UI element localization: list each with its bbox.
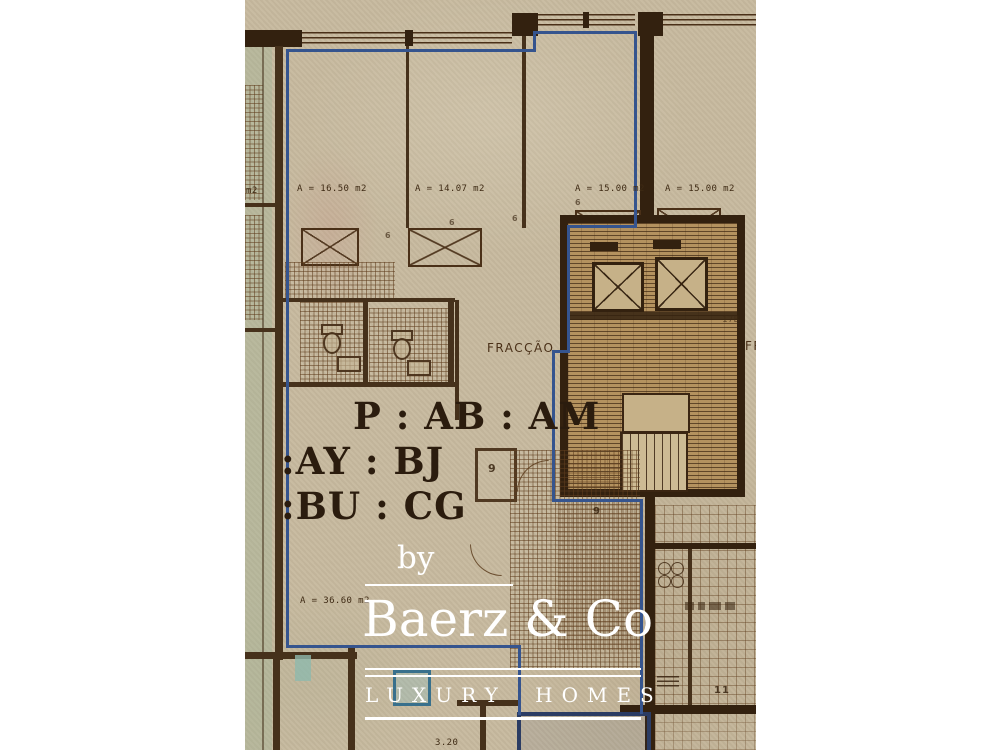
window-mullion xyxy=(405,30,413,46)
elevator-sill xyxy=(590,242,618,251)
partition-wall xyxy=(522,36,526,228)
area-label-partial: m2 xyxy=(246,186,258,196)
door-swing-arc xyxy=(470,544,502,576)
watermark-rule-top xyxy=(365,584,513,586)
faded-text-mark xyxy=(725,602,735,610)
toilet xyxy=(393,338,411,360)
stamp-line-1: P : AB : AM xyxy=(353,398,600,435)
window-marker: 6 xyxy=(575,198,581,207)
unit-outline-blue xyxy=(567,225,570,353)
core-label: 17B xyxy=(722,315,739,325)
exterior-wall-line xyxy=(262,30,264,750)
window-mullion xyxy=(583,12,589,28)
closet-box xyxy=(408,228,482,267)
stamp-line-2: :AY : BJ xyxy=(281,443,444,480)
unit-outline-blue xyxy=(634,31,637,228)
kitchen-wall xyxy=(688,549,692,705)
watermark-brand: Baerz & Co xyxy=(362,590,653,648)
kitchen-tiles xyxy=(655,713,756,750)
area-label-room4: A = 15.00 m2 xyxy=(665,184,735,194)
toilet xyxy=(323,332,341,354)
unit-outline-blue xyxy=(286,49,536,52)
faded-text-mark xyxy=(685,602,694,610)
window-glazing xyxy=(711,14,756,26)
wall-stub xyxy=(245,328,275,332)
dimension-label: 3.20 xyxy=(435,738,458,748)
unit-outline-blue xyxy=(286,49,289,648)
watermark-rule-double-2 xyxy=(365,675,641,677)
stair-landing xyxy=(622,393,690,433)
fraccao-label: FRACÇÃO xyxy=(487,341,554,355)
window-glazing xyxy=(302,32,405,44)
teal-patch xyxy=(295,655,311,681)
kitchen-tiles xyxy=(655,505,756,705)
lower-wall xyxy=(480,706,486,750)
sink xyxy=(407,360,431,376)
window-glazing xyxy=(663,14,711,26)
stove-burner xyxy=(671,562,684,575)
watermark-tagline: LUXURY HOMES xyxy=(365,683,663,707)
bathroom-wall xyxy=(448,300,454,386)
side-room-tiles xyxy=(245,215,263,320)
side-room-tiles xyxy=(245,85,263,200)
elevator-sill xyxy=(653,240,681,249)
unit-outline-blue xyxy=(552,499,643,502)
stove-burner xyxy=(658,575,671,588)
area-label-living: A = 36.60 m2 xyxy=(300,596,370,606)
fraccao-label-clipped: FR xyxy=(745,339,756,353)
area-label-room3: A = 15.00 m2 xyxy=(575,184,645,194)
stamp-line-3: :BU : CG xyxy=(281,488,467,525)
partition-wall xyxy=(406,46,409,228)
stove-burner xyxy=(658,562,671,575)
faded-text-mark xyxy=(709,602,721,610)
watermark-by: by xyxy=(397,540,434,576)
room-number-11: 11 xyxy=(714,685,730,696)
room-number-9b: 9 xyxy=(593,506,600,517)
window-marker: 6 xyxy=(512,214,518,223)
window-glazing xyxy=(413,32,512,44)
elevator-shaft xyxy=(655,257,708,311)
floorplan-image: m2 A = 16.50 m2 A = 14.07 m2 A = 15.00 m… xyxy=(245,0,756,750)
watermark-rule-bottom xyxy=(365,717,641,720)
room-number-9: 9 xyxy=(488,462,496,475)
elevator-shaft xyxy=(592,262,644,312)
window-marker: 6 xyxy=(385,231,391,240)
core-divider-wall xyxy=(565,312,740,320)
stove-burner xyxy=(671,575,684,588)
bathroom-wall xyxy=(283,382,455,387)
unit-left-wall xyxy=(275,46,283,660)
sink xyxy=(337,356,361,372)
scanned-floorplan-page: m2 A = 16.50 m2 A = 14.07 m2 A = 15.00 m… xyxy=(0,0,1000,750)
facade-pier xyxy=(245,30,302,47)
bathroom-wall xyxy=(363,300,368,386)
area-label-room1: A = 16.50 m2 xyxy=(297,184,367,194)
lower-wall xyxy=(273,652,280,750)
unit-outline-blue xyxy=(567,225,637,228)
closet-box xyxy=(301,228,359,266)
watermark-rule-double-1 xyxy=(365,668,641,670)
window-marker: 6 xyxy=(449,218,455,227)
bathroom-tiles xyxy=(285,262,395,302)
wall-stub xyxy=(245,203,275,207)
area-label-room2: A = 14.07 m2 xyxy=(415,184,485,194)
unit-outline-blue xyxy=(533,31,637,34)
kitchen-wall xyxy=(655,543,756,549)
lower-wall xyxy=(348,646,355,750)
faded-text-mark xyxy=(698,602,705,610)
